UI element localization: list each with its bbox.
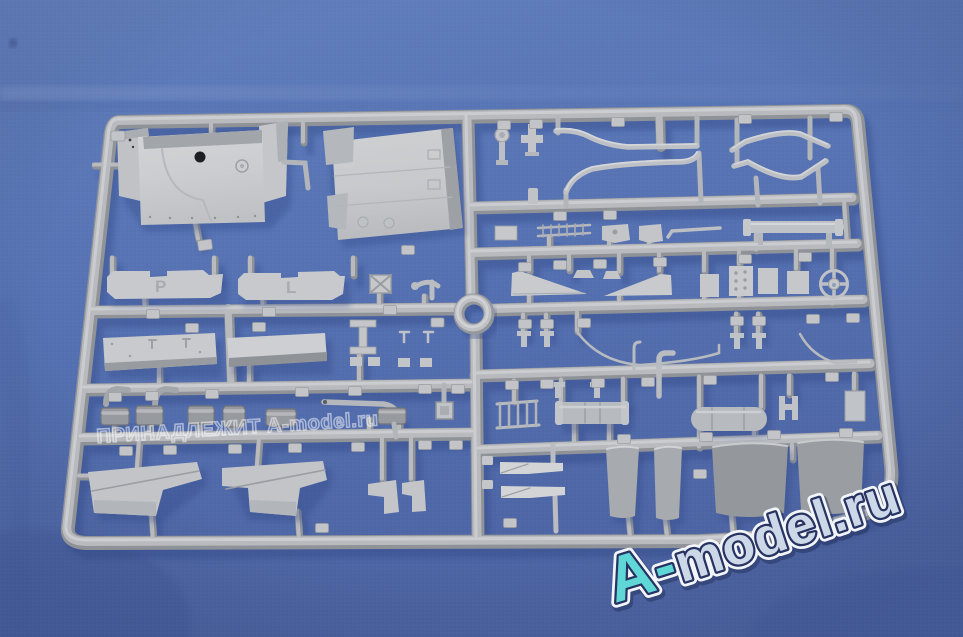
svg-text:L: L bbox=[286, 278, 296, 297]
svg-text:P: P bbox=[155, 277, 166, 296]
